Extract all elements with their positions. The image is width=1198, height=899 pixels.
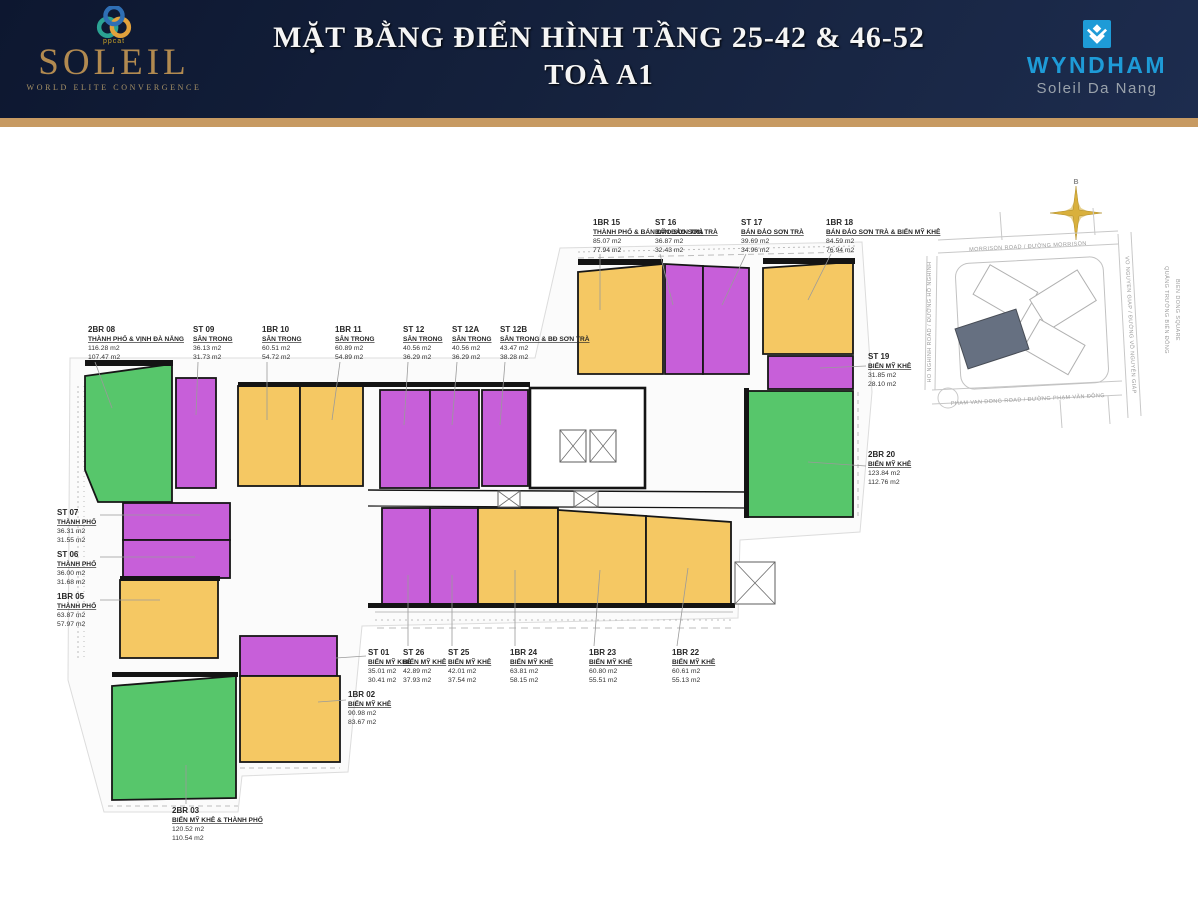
map-tower-a1-highlighted [955,309,1029,369]
map-tower-footprint [1023,319,1085,374]
svg-text:54.72 m2: 54.72 m2 [262,354,291,361]
svg-text:1BR 05: 1BR 05 [57,592,85,601]
wyndham-subtitle: Soleil Da Nang [1012,80,1182,97]
unit-label-1br18: 1BR 18BÁN ĐẢO SƠN TRÀ & BIỂN MỸ KHÊ 84.5… [826,218,941,254]
svg-text:1BR 11: 1BR 11 [335,325,362,334]
svg-text:39.69 m2: 39.69 m2 [741,238,770,245]
unit-2br20 [748,391,853,517]
svg-text:57.97 m2: 57.97 m2 [57,621,86,628]
svg-text:1BR 10: 1BR 10 [262,325,290,334]
page-title-line1: MẶT BẰNG ĐIỂN HÌNH TẦNG 25-42 & 46-52 [189,20,1009,56]
svg-text:SÂN TRONG: SÂN TRONG [193,334,233,343]
svg-text:35.01 m2: 35.01 m2 [368,668,397,675]
svg-text:40.56 m2: 40.56 m2 [452,345,481,352]
unit-label-st09: ST 09SÂN TRONG 36.13 m231.73 m2 [193,325,233,361]
unit-label-1br22: 1BR 22BIỂN MỸ KHÊ 60.61 m255.13 m2 [672,648,716,684]
svg-text:36.29 m2: 36.29 m2 [403,354,432,361]
slide-header: ppcat SOLEIL WORLD ELITE CONVERGENCE MẶT… [0,0,1198,118]
svg-text:ST 16: ST 16 [655,218,677,227]
unit-label-st19: ST 19BIỂN MỸ KHÊ 31.85 m228.10 m2 [868,352,912,388]
svg-text:BIỂN MỸ KHÊ: BIỂN MỸ KHÊ [868,459,912,468]
svg-text:60.61 m2: 60.61 m2 [672,668,701,675]
svg-text:34.96 m2: 34.96 m2 [741,247,770,254]
unit-1br22 [646,516,731,607]
wyndham-wordmark: WYNDHAM [1012,52,1182,79]
svg-text:1BR 15: 1BR 15 [593,218,621,227]
svg-text:37.93 m2: 37.93 m2 [403,677,432,684]
svg-text:110.54 m2: 110.54 m2 [172,835,204,842]
svg-text:63.81 m2: 63.81 m2 [510,668,539,675]
svg-text:BÁN ĐẢO SƠN TRÀ & BIỂN MỸ KHÊ: BÁN ĐẢO SƠN TRÀ & BIỂN MỸ KHÊ [826,227,941,236]
svg-text:32.43 m2: 32.43 m2 [655,247,684,254]
svg-text:55.51 m2: 55.51 m2 [589,677,618,684]
unit-label-2br08: 2BR 08THÀNH PHỐ & VỊNH ĐÀ NẴNG 116.28 m2… [88,325,184,361]
unit-2br03 [112,676,236,800]
svg-text:60.51 m2: 60.51 m2 [262,345,291,352]
svg-text:123.84 m2: 123.84 m2 [868,470,900,477]
unit-st06 [123,540,230,578]
unit-label-2br20: 2BR 20BIỂN MỸ KHÊ 123.84 m2112.76 m2 [868,450,912,486]
soleil-logo: ppcat SOLEIL WORLD ELITE CONVERGENCE [14,6,214,92]
svg-text:84.59 m2: 84.59 m2 [826,238,855,245]
svg-text:43.47 m2: 43.47 m2 [500,345,529,352]
elevator-core [530,388,645,488]
svg-text:40.56 m2: 40.56 m2 [403,345,432,352]
svg-text:SÂN TRONG: SÂN TRONG [335,334,375,343]
svg-text:31.55 m2: 31.55 m2 [57,537,86,544]
svg-text:ST 07: ST 07 [57,508,79,517]
svg-text:SÂN TRONG: SÂN TRONG [262,334,302,343]
svg-text:42.01 m2: 42.01 m2 [448,668,477,675]
svg-text:2BR 03: 2BR 03 [172,806,200,815]
svg-text:76.94 m2: 76.94 m2 [826,247,855,254]
unit-1br18 [763,262,853,354]
svg-text:BIỂN MỸ KHÊ: BIỂN MỸ KHÊ [868,361,912,370]
unit-st12b [482,390,528,486]
svg-text:36.87 m2: 36.87 m2 [655,238,684,245]
svg-text:42.89 m2: 42.89 m2 [403,668,432,675]
unit-st01 [240,636,337,676]
unit-1br15 [578,264,663,374]
wyndham-logo: WYNDHAM Soleil Da Nang [1012,20,1182,97]
svg-text:58.15 m2: 58.15 m2 [510,677,539,684]
svg-text:1BR 23: 1BR 23 [589,648,617,657]
map-road-top-label: MORRISON ROAD / ĐƯỜNG MORRISON [969,240,1087,253]
unit-label-st12: ST 12SÂN TRONG 40.56 m236.29 m2 [403,325,443,361]
map-site [955,256,1109,390]
svg-text:ST 19: ST 19 [868,352,890,361]
svg-text:ST 01: ST 01 [368,648,390,657]
unit-st19 [768,356,853,389]
svg-text:BIỂN MỸ KHÊ: BIỂN MỸ KHÊ [510,657,554,666]
svg-text:BIỂN MỸ KHÊ & THÀNH PHỐ: BIỂN MỸ KHÊ & THÀNH PHỐ [172,814,263,824]
floor-plan: 1BR 15THÀNH PHỐ & BÁN ĐẢO SƠN TRÀ 85.07 … [0,0,1198,899]
unit-1br05 [120,580,218,658]
svg-text:60.89 m2: 60.89 m2 [335,345,364,352]
page-title-line2: TOÀ A1 [189,56,1009,94]
svg-text:31.68 m2: 31.68 m2 [57,579,86,586]
unit-label-1br11: 1BR 11SÂN TRONG 60.89 m254.89 m2 [335,325,375,361]
map-road-left-label: HO NGHINH ROAD / ĐƯỜNG HỒ NGHINH [926,262,933,383]
svg-text:36.31 m2: 36.31 m2 [57,528,86,535]
svg-text:31.85 m2: 31.85 m2 [868,372,897,379]
svg-text:55.13 m2: 55.13 m2 [672,677,701,684]
unit-label-1br23: 1BR 23BIỂN MỸ KHÊ 60.80 m255.51 m2 [589,648,633,684]
svg-text:107.47 m2: 107.47 m2 [88,354,120,361]
gold-divider [0,118,1198,127]
svg-text:BIỂN MỸ KHÊ: BIỂN MỸ KHÊ [672,657,716,666]
svg-text:36.29 m2: 36.29 m2 [452,354,481,361]
svg-text:54.89 m2: 54.89 m2 [335,354,364,361]
unit-label-st25: ST 25BIỂN MỸ KHÊ 42.01 m237.54 m2 [448,648,492,684]
location-map: B [925,179,1180,428]
unit-label-st26: ST 26BIỂN MỸ KHÊ 42.89 m237.93 m2 [403,648,447,684]
svg-text:30.41 m2: 30.41 m2 [368,677,397,684]
svg-text:37.54 m2: 37.54 m2 [448,677,477,684]
soleil-wordmark: SOLEIL [14,45,214,81]
svg-text:28.10 m2: 28.10 m2 [868,381,897,388]
svg-text:90.98 m2: 90.98 m2 [348,710,377,717]
svg-text:2BR 20: 2BR 20 [868,450,896,459]
svg-text:BÁN ĐẢO SƠN TRÀ: BÁN ĐẢO SƠN TRÀ [655,227,718,236]
svg-text:SÂN TRONG & BĐ SƠN TRÀ: SÂN TRONG & BĐ SƠN TRÀ [500,334,590,343]
unit-1br10 [238,386,300,486]
unit-st16 [665,264,703,374]
svg-text:1BR 18: 1BR 18 [826,218,854,227]
svg-text:ST 12B: ST 12B [500,325,527,334]
svg-text:BIỂN MỸ KHÊ: BIỂN MỸ KHÊ [589,657,633,666]
svg-text:85.07 m2: 85.07 m2 [593,238,622,245]
unit-1br23 [558,510,646,607]
slide: ppcat SOLEIL WORLD ELITE CONVERGENCE MẶT… [0,0,1198,899]
unit-1br24 [478,508,558,607]
unit-st26 [382,508,430,607]
svg-text:2BR 08: 2BR 08 [88,325,116,334]
svg-text:63.87 m2: 63.87 m2 [57,612,86,619]
soleil-tagline: WORLD ELITE CONVERGENCE [14,83,214,92]
unit-label-st12a: ST 12ASÂN TRONG 40.56 m236.29 m2 [452,325,492,361]
svg-text:83.67 m2: 83.67 m2 [348,719,377,726]
map-square-label-vi: QUẢNG TRƯỜNG BIỂN ĐÔNG [1163,266,1170,354]
svg-text:1BR 02: 1BR 02 [348,690,376,699]
unit-st25 [430,508,478,607]
svg-text:ST 26: ST 26 [403,648,425,657]
wyndham-icon [1083,20,1111,48]
svg-text:SÂN TRONG: SÂN TRONG [452,334,492,343]
unit-2br08 [85,364,172,502]
svg-text:ST 12A: ST 12A [452,325,479,334]
svg-text:ST 25: ST 25 [448,648,470,657]
unit-label-1br10: 1BR 10SÂN TRONG 60.51 m254.72 m2 [262,325,302,361]
svg-text:THÀNH PHỐ & VỊNH ĐÀ NẴNG: THÀNH PHỐ & VỊNH ĐÀ NẴNG [88,333,184,343]
svg-text:112.76 m2: 112.76 m2 [868,479,900,486]
svg-text:ST 17: ST 17 [741,218,763,227]
svg-text:38.28 m2: 38.28 m2 [500,354,529,361]
svg-text:ST 09: ST 09 [193,325,215,334]
unit-1br02 [240,676,340,762]
unit-st12a [430,390,479,488]
svg-text:60.80 m2: 60.80 m2 [589,668,618,675]
map-square-label-en: BIEN DONG SQUARE [1174,279,1180,341]
svg-text:BIỂN MỸ KHÊ: BIỂN MỸ KHÊ [348,699,392,708]
svg-text:36.00 m2: 36.00 m2 [57,570,86,577]
svg-text:1BR 24: 1BR 24 [510,648,538,657]
compass-north-label: B [1073,179,1078,186]
unit-st09 [176,378,216,488]
svg-text:36.13 m2: 36.13 m2 [193,345,222,352]
svg-text:BÁN ĐẢO SƠN TRÀ: BÁN ĐẢO SƠN TRÀ [741,227,804,236]
unit-st17 [703,266,749,374]
svg-text:SÂN TRONG: SÂN TRONG [403,334,443,343]
soleil-trefoil-icon [92,6,136,40]
svg-text:ST 12: ST 12 [403,325,425,334]
svg-text:1BR 22: 1BR 22 [672,648,700,657]
page-title: MẶT BẰNG ĐIỂN HÌNH TẦNG 25-42 & 46-52 TO… [189,20,1009,94]
svg-text:116.28 m2: 116.28 m2 [88,345,120,352]
svg-text:BIỂN MỸ KHÊ: BIỂN MỸ KHÊ [448,657,492,666]
map-road-bottom-label: PHAM VAN DONG ROAD / ĐƯỜNG PHẠM VĂN ĐÔNG [951,392,1105,407]
unit-st07 [123,503,230,540]
svg-text:BIỂN MỸ KHÊ: BIỂN MỸ KHÊ [403,657,447,666]
svg-text:77.94 m2: 77.94 m2 [593,247,622,254]
svg-text:ST 06: ST 06 [57,550,79,559]
svg-text:120.52 m2: 120.52 m2 [172,826,204,833]
unit-label-1br24: 1BR 24BIỂN MỸ KHÊ 63.81 m258.15 m2 [510,648,554,684]
unit-1br11 [300,386,363,486]
svg-text:31.73 m2: 31.73 m2 [193,354,222,361]
